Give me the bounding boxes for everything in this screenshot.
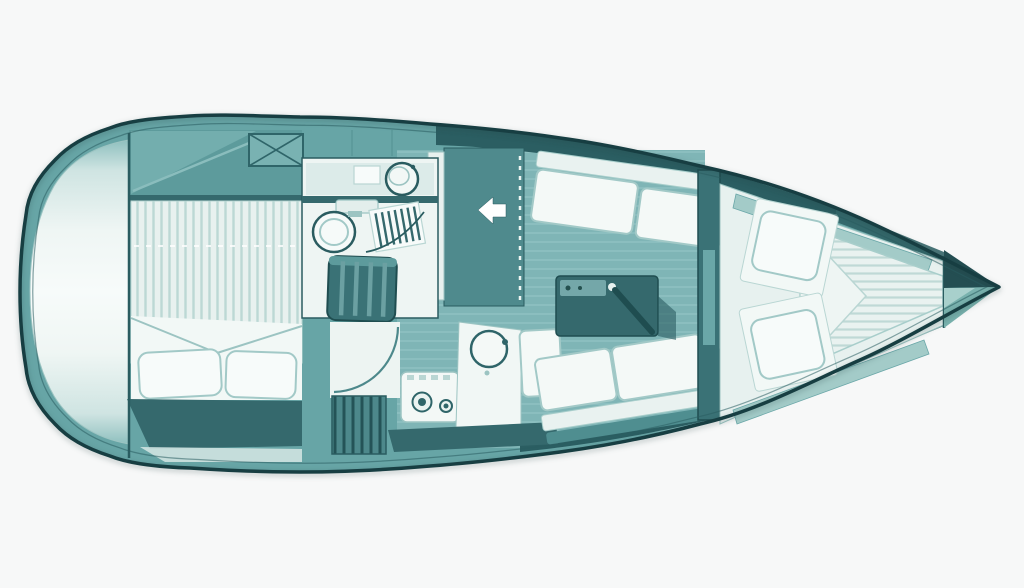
aft-berth-base	[127, 399, 302, 449]
table-dot-1	[566, 286, 571, 291]
toilet-hinge	[348, 211, 362, 217]
table-dot-2	[578, 286, 582, 290]
drain-dot	[485, 371, 490, 376]
companionway-steps	[327, 256, 397, 322]
companionway-bulkhead	[444, 148, 524, 306]
wet-locker-louver	[332, 396, 386, 454]
stbd-cushion-1	[534, 348, 617, 411]
galley-sink-unit	[456, 322, 521, 432]
aft-cabin	[127, 130, 302, 462]
galley-stove	[401, 372, 459, 422]
galley-sink	[471, 331, 507, 367]
companionway	[428, 148, 524, 306]
floor-plan-canvas	[0, 0, 1024, 588]
cockpit-locker-hatch	[249, 134, 303, 166]
burner-large-center	[418, 398, 426, 406]
head-shelf-box	[354, 166, 380, 184]
aft-pillow-left	[138, 349, 222, 399]
head-faucet	[411, 165, 415, 169]
bulkhead-panel	[703, 250, 715, 345]
shower-grate	[369, 202, 426, 252]
vberth-pillow-top	[740, 198, 840, 298]
aft-pillow-right	[225, 351, 297, 399]
aft-deck-strip	[140, 447, 302, 462]
galley-faucet	[502, 339, 508, 345]
saloon-table	[556, 276, 676, 340]
burner-small-center	[444, 404, 449, 409]
boat-floor-plan	[0, 0, 1024, 588]
